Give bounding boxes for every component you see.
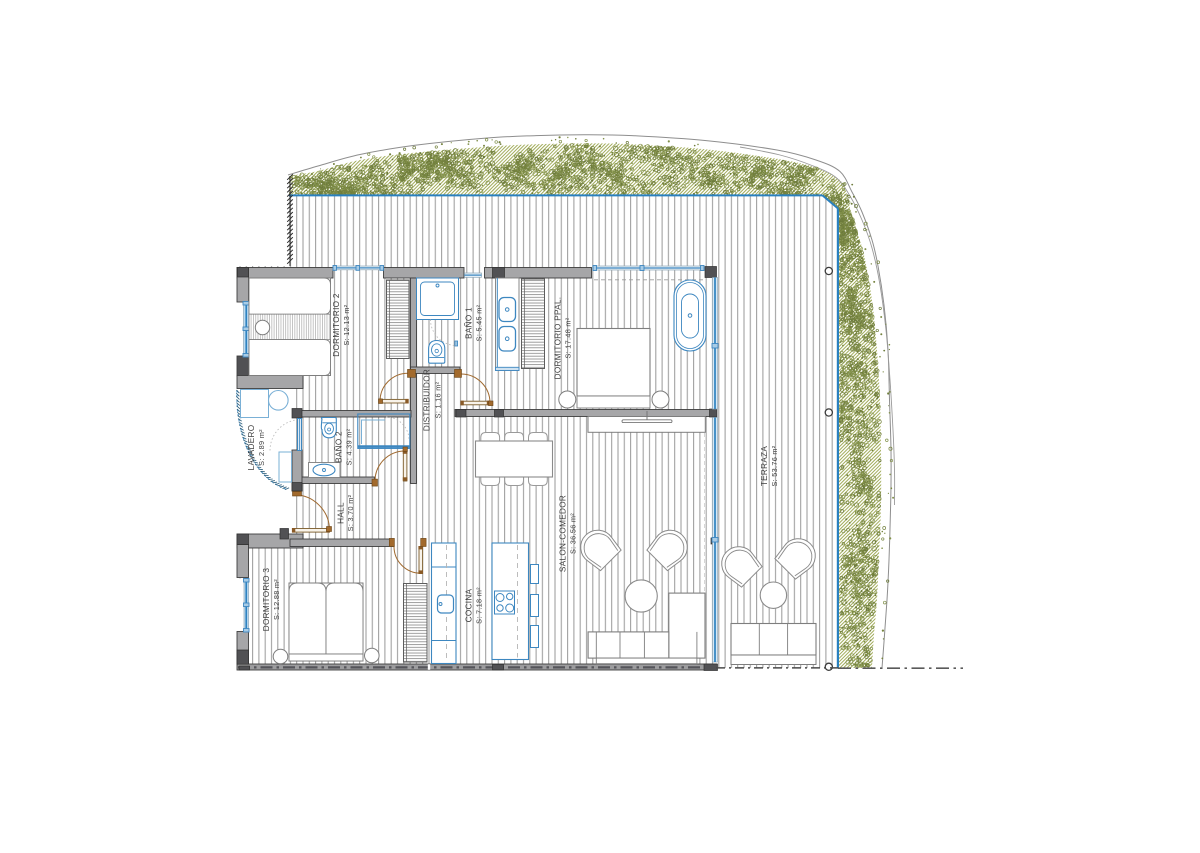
svg-text:TERRAZA: TERRAZA bbox=[760, 446, 769, 487]
svg-text:S: 17.48 m²: S: 17.48 m² bbox=[564, 317, 573, 358]
svg-text:S: 7.18 m²: S: 7.18 m² bbox=[475, 587, 484, 624]
svg-text:S: 2.89 m²: S: 2.89 m² bbox=[257, 429, 266, 466]
svg-text:DORMITORIO PPAL.: DORMITORIO PPAL. bbox=[554, 297, 563, 380]
svg-text:LAVADERO: LAVADERO bbox=[247, 425, 256, 471]
svg-text:S: 5.45 m²: S: 5.45 m² bbox=[475, 304, 484, 341]
svg-text:BAÑO 1: BAÑO 1 bbox=[464, 307, 474, 339]
svg-text:DORMITORIO 3: DORMITORIO 3 bbox=[262, 568, 271, 632]
svg-text:S: 36.56 m²: S: 36.56 m² bbox=[569, 513, 578, 554]
svg-text:DORMITORIO 2: DORMITORIO 2 bbox=[332, 293, 341, 357]
svg-text:DISTRIBUIDOR: DISTRIBUIDOR bbox=[423, 369, 432, 431]
svg-text:S: 4.39 m²: S: 4.39 m² bbox=[345, 428, 354, 465]
svg-text:S: 1.16 m²: S: 1.16 m² bbox=[434, 381, 443, 418]
svg-text:S: 12.88 m²: S: 12.88 m² bbox=[272, 579, 281, 620]
svg-text:S: 12.13 m²: S: 12.13 m² bbox=[342, 304, 351, 345]
svg-text:HALL: HALL bbox=[337, 502, 346, 524]
svg-text:BAÑO 2: BAÑO 2 bbox=[334, 431, 344, 463]
svg-text:SALON-COMEDOR: SALON-COMEDOR bbox=[559, 495, 568, 572]
svg-text:COCINA: COCINA bbox=[465, 588, 474, 622]
svg-text:S: 53.76 m²: S: 53.76 m² bbox=[770, 445, 779, 486]
svg-text:S: 3.70 m²: S: 3.70 m² bbox=[346, 494, 355, 531]
